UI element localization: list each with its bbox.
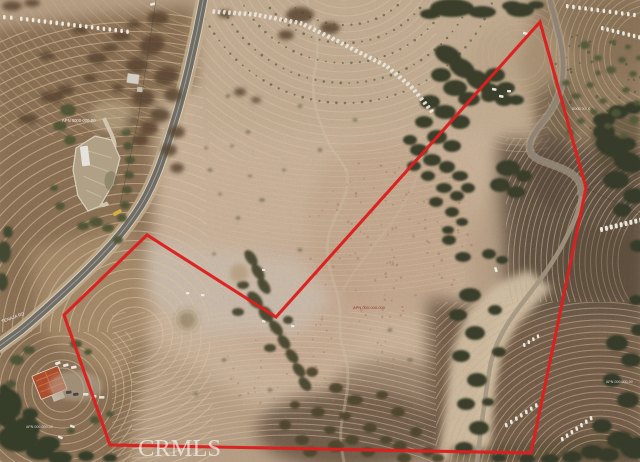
svg-text:CRMLS: CRMLS — [138, 435, 221, 462]
